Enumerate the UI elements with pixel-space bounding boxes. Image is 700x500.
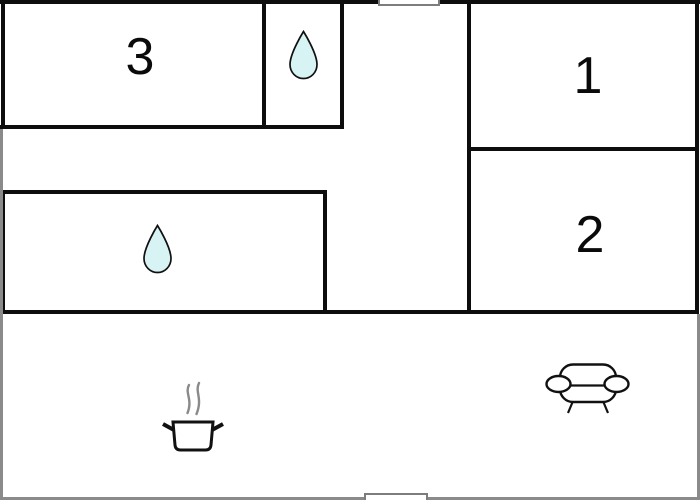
window-marker-bottom (364, 493, 428, 500)
water-drop-icon (288, 30, 319, 80)
sofa-armrest (605, 376, 629, 392)
sofa-armrest (547, 376, 571, 392)
sofa-icon (545, 362, 630, 414)
steam-line (188, 385, 190, 413)
wall-midroom-top (1, 190, 327, 194)
wall-room3-divider (262, 0, 266, 129)
window-marker-top (378, 0, 440, 6)
steam-line (197, 383, 200, 414)
cooking-pot-icon (158, 380, 224, 452)
water-drop-shape (144, 226, 171, 273)
wall-room3-bottom (0, 125, 344, 129)
wall-main-horizontal (0, 310, 699, 314)
room-1-label: 1 (553, 49, 623, 103)
wall-midroom-right (323, 190, 327, 314)
floor-plan: 3 1 2 (0, 0, 700, 500)
wall-outer-right (695, 0, 699, 314)
wall-rooms12-left (467, 0, 471, 314)
wall-rooms12-divider (467, 147, 699, 151)
wall-top (0, 0, 700, 4)
room-2-label: 2 (555, 208, 625, 262)
water-drop-shape (290, 32, 317, 79)
wall-room3-left (1, 0, 5, 129)
edge-strip-left (0, 129, 3, 500)
wall-bathroom-right (340, 0, 344, 129)
water-drop-icon (142, 224, 173, 274)
room-3-label: 3 (105, 30, 175, 84)
pot-body (173, 422, 213, 450)
